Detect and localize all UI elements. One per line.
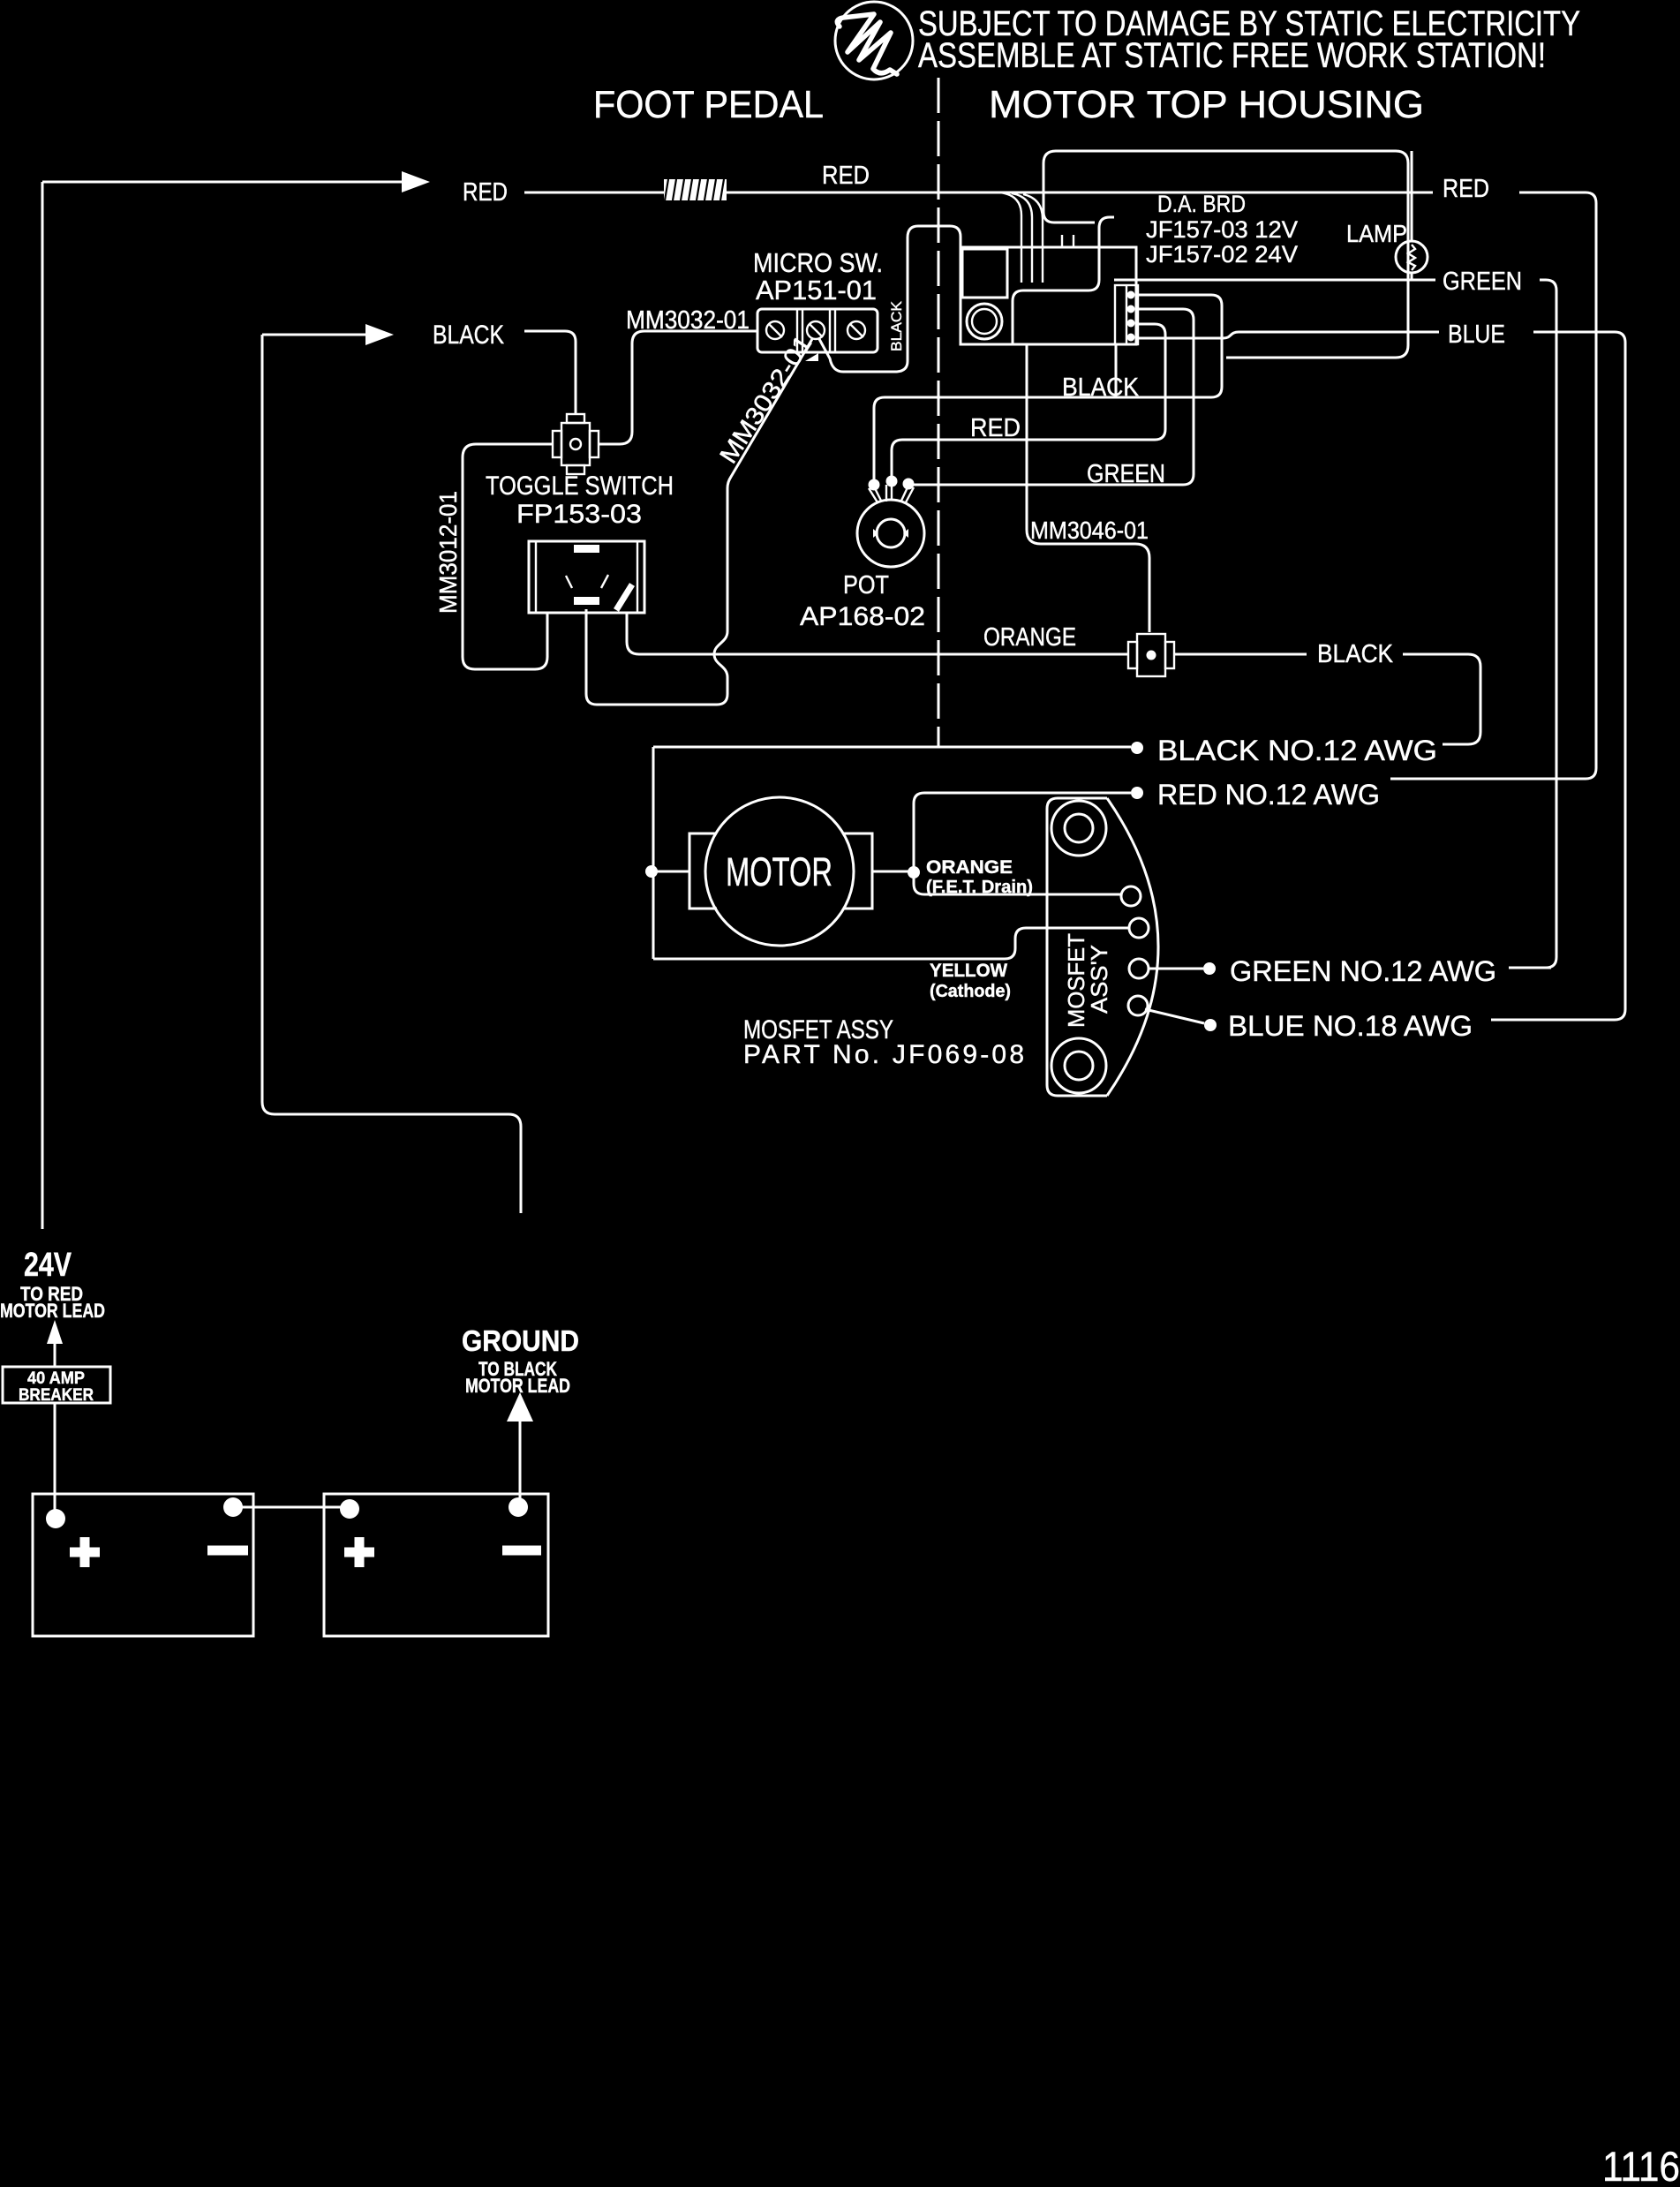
svg-text:BLUE: BLUE — [1448, 321, 1505, 349]
svg-text:GROUND: GROUND — [462, 1324, 579, 1357]
svg-text:LAMP: LAMP — [1346, 220, 1407, 247]
svg-text:FOOT PEDAL: FOOT PEDAL — [593, 83, 824, 126]
svg-text:RED: RED — [463, 178, 508, 207]
svg-text:BLACK: BLACK — [888, 300, 905, 351]
svg-text:GREEN NO.12 AWG: GREEN NO.12 AWG — [1230, 955, 1496, 987]
svg-text:ASS'Y: ASS'Y — [1086, 945, 1112, 1014]
svg-text:MOTOR LEAD: MOTOR LEAD — [465, 1375, 570, 1397]
svg-text:ASSEMBLE AT STATIC FREE WORK S: ASSEMBLE AT STATIC FREE WORK STATION! — [918, 36, 1546, 75]
svg-text:JF157-02 24V: JF157-02 24V — [1146, 241, 1298, 268]
svg-text:BREAKER: BREAKER — [19, 1386, 94, 1405]
svg-text:ORANGE: ORANGE — [926, 857, 1013, 878]
svg-text:(Cathode): (Cathode) — [930, 982, 1011, 1001]
svg-text:RED: RED — [1443, 175, 1489, 203]
svg-text:(F.E.T. Drain): (F.E.T. Drain) — [926, 878, 1033, 897]
svg-text:FP153-03: FP153-03 — [516, 500, 642, 529]
svg-text:BLACK NO.12 AWG: BLACK NO.12 AWG — [1157, 735, 1437, 766]
svg-text:PART No. JF069-08: PART No. JF069-08 — [743, 1040, 1024, 1069]
svg-text:RED: RED — [970, 414, 1021, 442]
svg-text:MICRO SW.: MICRO SW. — [753, 247, 883, 278]
svg-text:MM3012-01: MM3012-01 — [434, 491, 462, 614]
svg-text:AP151-01: AP151-01 — [756, 275, 877, 305]
svg-text:1116: 1116 — [1602, 2143, 1680, 2187]
svg-text:POT: POT — [843, 571, 889, 600]
svg-text:MOTOR: MOTOR — [726, 849, 832, 894]
svg-text:MOTOR LEAD: MOTOR LEAD — [0, 1300, 105, 1322]
svg-text:ORANGE: ORANGE — [983, 623, 1076, 652]
svg-text:BLUE NO.18 AWG: BLUE NO.18 AWG — [1228, 1010, 1473, 1042]
svg-text:AP168-02: AP168-02 — [800, 602, 925, 631]
svg-text:GREEN: GREEN — [1443, 268, 1522, 296]
svg-text:40 AMP: 40 AMP — [27, 1369, 85, 1388]
svg-text:YELLOW: YELLOW — [930, 961, 1007, 981]
svg-text:BLACK: BLACK — [433, 321, 504, 350]
svg-text:MM3032-01: MM3032-01 — [626, 306, 750, 335]
svg-text:MOTOR TOP HOUSING: MOTOR TOP HOUSING — [989, 83, 1424, 126]
svg-text:BLACK: BLACK — [1062, 373, 1140, 402]
svg-text:TOGGLE SWITCH: TOGGLE SWITCH — [486, 471, 674, 501]
svg-text:JF157-03 12V: JF157-03 12V — [1146, 216, 1298, 243]
svg-text:MM3046-01: MM3046-01 — [1030, 517, 1149, 544]
svg-text:GREEN: GREEN — [1087, 460, 1165, 488]
svg-text:BLACK: BLACK — [1317, 640, 1394, 668]
svg-text:24V: 24V — [24, 1247, 72, 1284]
svg-text:RED NO.12 AWG: RED NO.12 AWG — [1157, 779, 1380, 811]
svg-text:D.A. BRD: D.A. BRD — [1157, 191, 1246, 217]
svg-text:RED: RED — [822, 162, 870, 190]
